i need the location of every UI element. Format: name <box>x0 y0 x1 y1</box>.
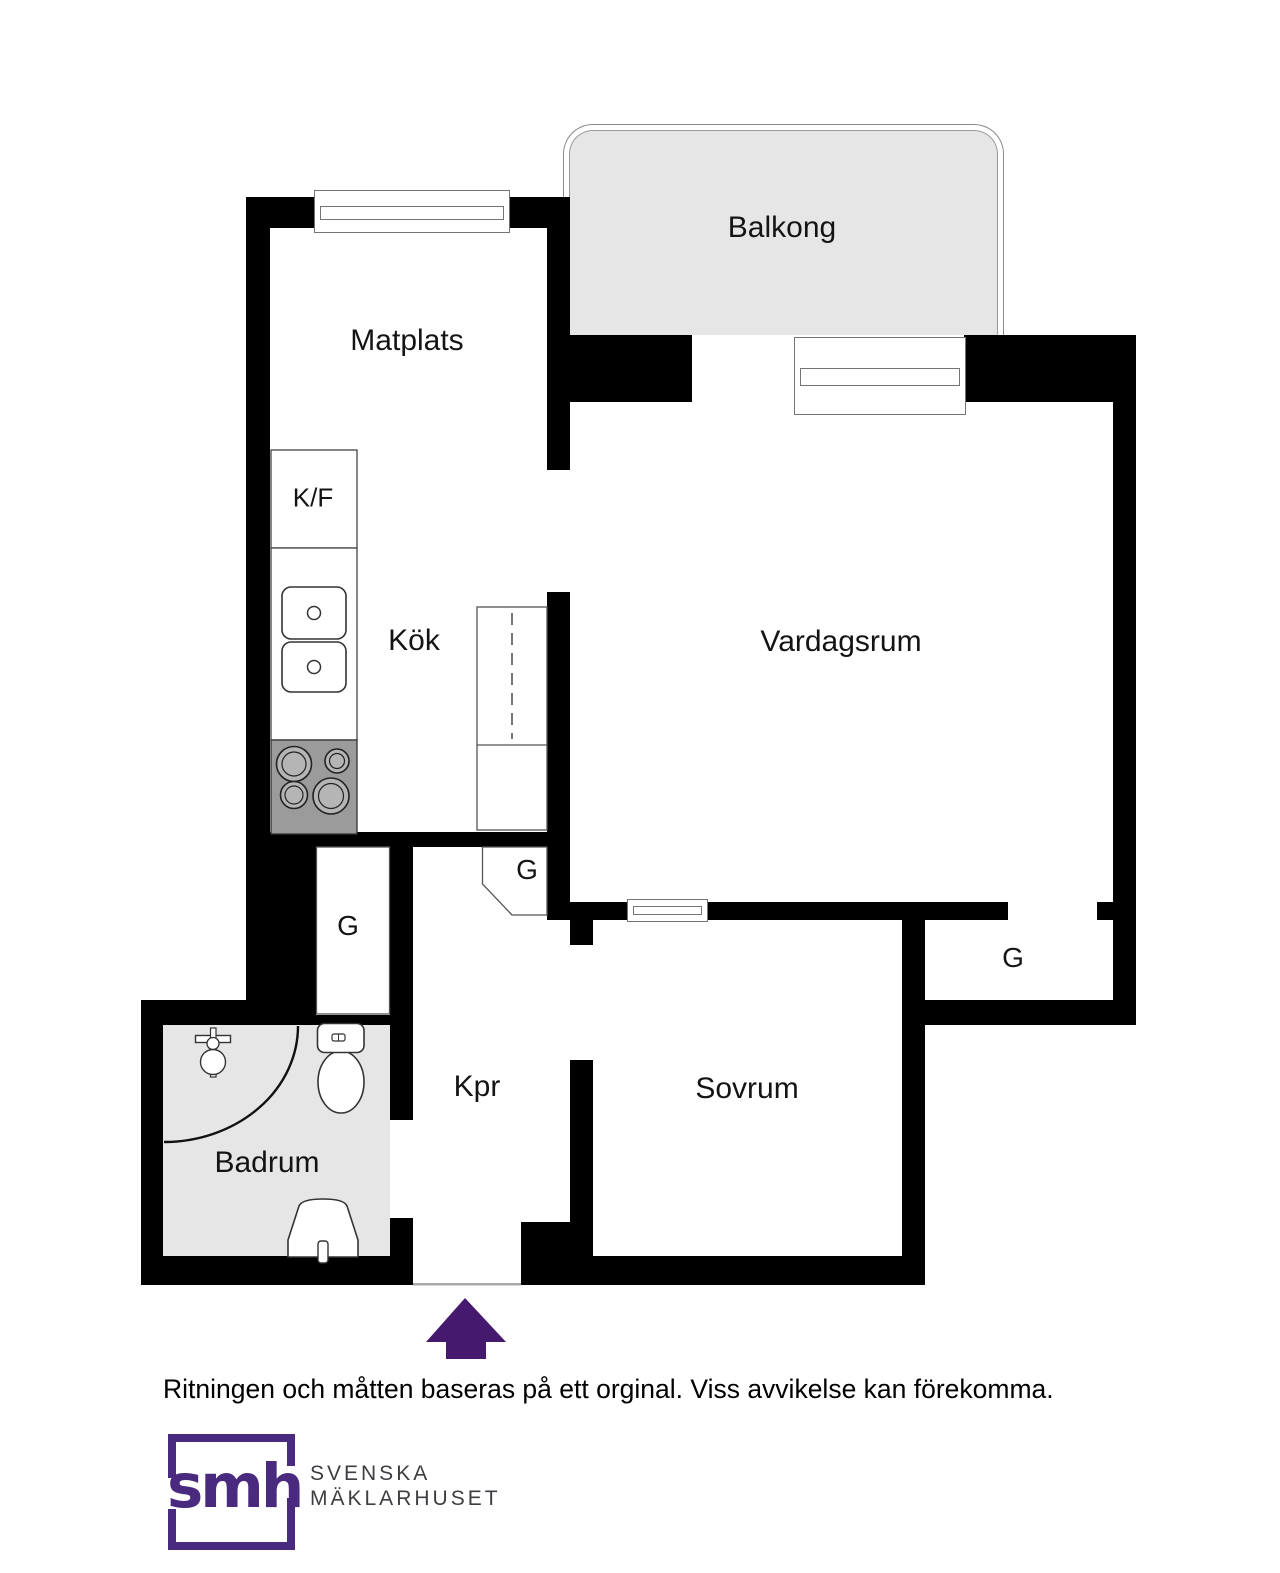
logo-monogram: smh <box>167 1451 301 1522</box>
room-label-dining: Matplats <box>350 324 463 358</box>
wardrobe-cabinet <box>477 607 547 830</box>
room-label-bedroom: Sovrum <box>695 1072 798 1106</box>
brand-name-line1: SVENSKA <box>310 1462 430 1486</box>
brand-name-line2: MÄKLARHUSET <box>310 1487 501 1511</box>
shower-icon <box>164 1026 298 1142</box>
fixtures-layer <box>0 0 1280 1573</box>
room-label-bathroom: Badrum <box>214 1146 319 1180</box>
toilet-icon <box>318 1024 365 1114</box>
closet-label: G <box>1002 942 1024 974</box>
room-label-kitchen: Kök <box>388 624 440 658</box>
floor-plan-page: Balkong Matplats K/F Kök Vardagsrum G G … <box>0 0 1280 1573</box>
entrance-arrow-icon <box>426 1298 506 1359</box>
room-label-living: Vardagsrum <box>760 625 921 659</box>
entrance-threshold <box>413 1283 521 1286</box>
kitchen-sink-icon <box>271 548 357 740</box>
sink-icon <box>288 1199 358 1263</box>
disclaimer-text: Ritningen och måtten baseras på ett orgi… <box>163 1374 1054 1405</box>
room-label-fridge: K/F <box>293 483 333 514</box>
stove-icon <box>271 740 357 834</box>
room-label-balcony: Balkong <box>728 211 836 245</box>
closet-label: G <box>337 910 359 942</box>
room-label-hall: Kpr <box>454 1070 501 1104</box>
closet-label: G <box>516 854 538 886</box>
